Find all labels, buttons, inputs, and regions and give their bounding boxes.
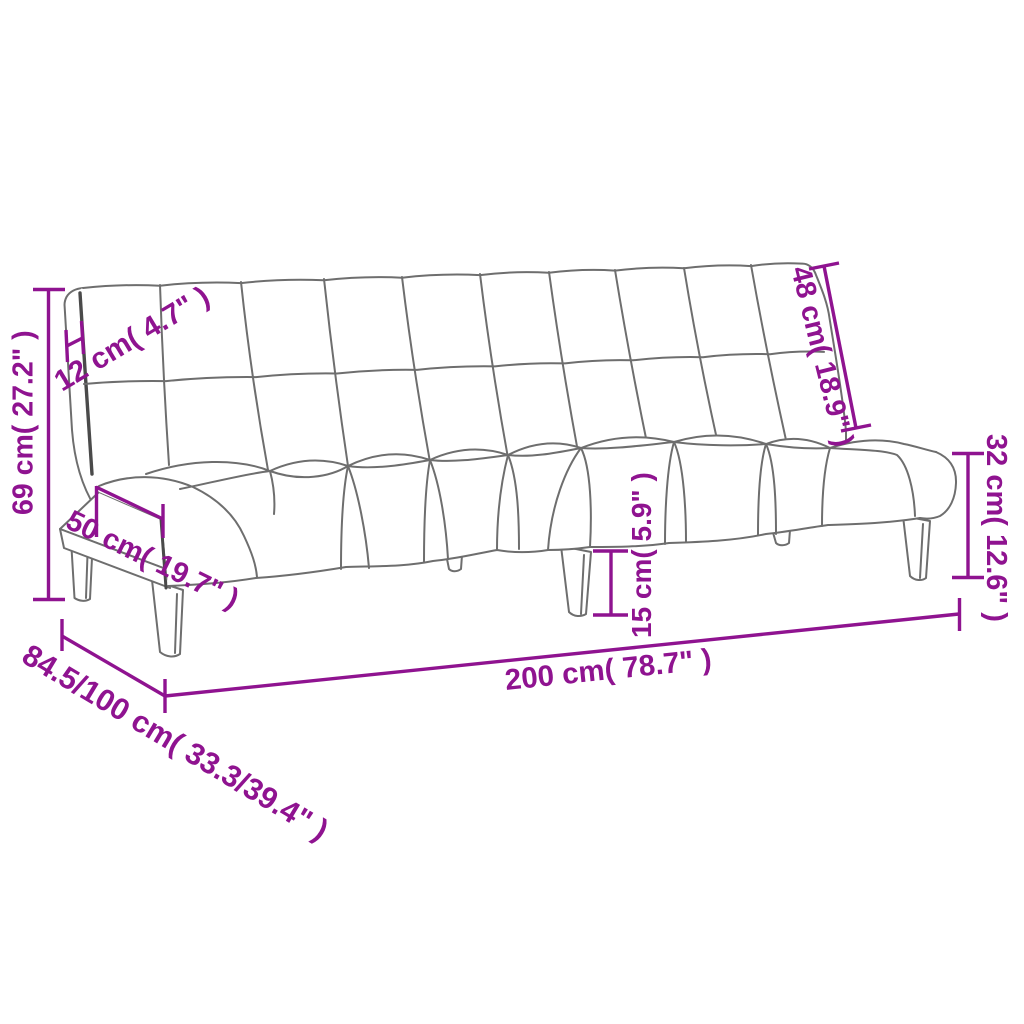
svg-text:69 cm( 27.2" ): 69 cm( 27.2" ) xyxy=(8,330,40,515)
svg-text:32 cm( 12.6" ): 32 cm( 12.6" ) xyxy=(980,434,1012,622)
svg-text:15 cm( 5.9" ): 15 cm( 5.9" ) xyxy=(626,472,657,638)
svg-text:84.5/100 cm( 33.3/39.4" ): 84.5/100 cm( 33.3/39.4" ) xyxy=(16,638,334,848)
